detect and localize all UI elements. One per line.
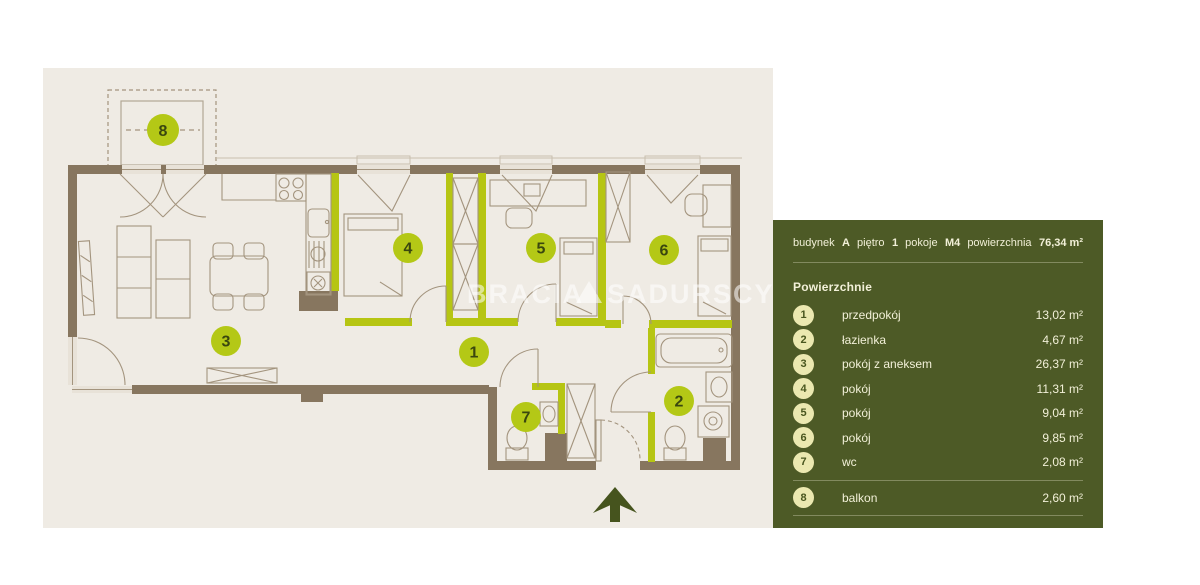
area-row: 8 balkon 2,60 m² bbox=[793, 486, 1083, 511]
room-area: 2,60 m² bbox=[1042, 491, 1083, 505]
room-marker-6: 6 bbox=[649, 235, 679, 265]
room-area: 2,08 m² bbox=[1042, 455, 1083, 469]
room-number-badge: 5 bbox=[793, 403, 814, 424]
watermark-text-2: SADURSCY bbox=[607, 279, 775, 309]
room-area: 13,02 m² bbox=[1036, 308, 1083, 322]
svg-text:2: 2 bbox=[675, 394, 684, 411]
room-area: 9,04 m² bbox=[1042, 406, 1083, 420]
room-name: pokój bbox=[842, 406, 871, 420]
room-number-badge: 3 bbox=[793, 354, 814, 375]
info-panel: budynek A piętro 1 pokoje M4 powierzchni… bbox=[773, 220, 1103, 528]
area-row: 3 pokój z aneksem 26,37 m² bbox=[793, 352, 1083, 377]
room-marker-5: 5 bbox=[526, 233, 556, 263]
meta-rooms: pokoje M4 bbox=[905, 233, 960, 251]
room-area: 26,37 m² bbox=[1036, 357, 1083, 371]
panel-divider bbox=[793, 262, 1083, 263]
room-number-badge: 8 bbox=[793, 487, 814, 508]
room-marker-7: 7 bbox=[511, 402, 541, 432]
meta-rooms-value: M4 bbox=[945, 237, 960, 249]
room-marker-8: 8 bbox=[147, 114, 179, 146]
svg-text:5: 5 bbox=[537, 241, 546, 258]
room-name: wc bbox=[842, 455, 857, 469]
room-marker-3: 3 bbox=[211, 326, 241, 356]
svg-text:8: 8 bbox=[159, 123, 168, 140]
areas-section-title: Powierzchnie bbox=[793, 280, 1083, 294]
room-number-badge: 6 bbox=[793, 427, 814, 448]
room-name: pokój z aneksem bbox=[842, 357, 932, 371]
meta-total-area-value: 76,34 m² bbox=[1039, 237, 1083, 249]
area-row: 2 łazienka 4,67 m² bbox=[793, 328, 1083, 353]
area-row: 1 przedpokój 13,02 m² bbox=[793, 303, 1083, 328]
meta-total-area: powierzchnia 76,34 m² bbox=[967, 233, 1083, 251]
room-area: 11,31 m² bbox=[1037, 382, 1083, 396]
room-marker-4: 4 bbox=[393, 233, 423, 263]
room-name: pokój bbox=[842, 431, 871, 445]
panel-divider bbox=[793, 515, 1083, 516]
room-marker-1: 1 bbox=[459, 337, 489, 367]
meta-building-value: A bbox=[842, 237, 850, 249]
room-area: 4,67 m² bbox=[1042, 333, 1083, 347]
meta-building: budynek A bbox=[793, 233, 850, 251]
room-number-badge: 7 bbox=[793, 452, 814, 473]
room-marker-2: 2 bbox=[664, 386, 694, 416]
areas-list: 1 przedpokój 13,02 m² 2 łazienka 4,67 m²… bbox=[793, 303, 1083, 516]
meta-floor-value: 1 bbox=[892, 237, 898, 249]
room-number-badge: 2 bbox=[793, 329, 814, 350]
room-name: balkon bbox=[842, 491, 877, 505]
panel-divider bbox=[793, 480, 1083, 481]
meta-floor-label: piętro bbox=[857, 237, 885, 249]
room-name: łazienka bbox=[842, 333, 886, 347]
svg-text:1: 1 bbox=[470, 345, 479, 362]
room-name: przedpokój bbox=[842, 308, 901, 322]
watermark: BRACIA SADURSCY bbox=[467, 279, 775, 309]
room-area: 9,85 m² bbox=[1042, 431, 1083, 445]
room-number-badge: 4 bbox=[793, 378, 814, 399]
watermark-text-1: BRACIA bbox=[467, 279, 584, 309]
room-number-badge: 1 bbox=[793, 305, 814, 326]
svg-text:7: 7 bbox=[522, 410, 531, 427]
room-name: pokój bbox=[842, 382, 871, 396]
meta-rooms-label: pokoje bbox=[905, 237, 937, 249]
meta-total-area-label: powierzchnia bbox=[967, 237, 1031, 249]
svg-text:4: 4 bbox=[404, 241, 413, 258]
svg-text:6: 6 bbox=[660, 243, 669, 260]
area-row: 4 pokój 11,31 m² bbox=[793, 377, 1083, 402]
area-row: 6 pokój 9,85 m² bbox=[793, 426, 1083, 451]
apartment-meta: budynek A piętro 1 pokoje M4 powierzchni… bbox=[793, 233, 1083, 251]
svg-text:3: 3 bbox=[222, 334, 231, 351]
page: BRACIA SADURSCY 1 2 3 4 bbox=[0, 0, 1200, 585]
meta-floor: piętro 1 bbox=[857, 233, 898, 251]
area-row: 5 pokój 9,04 m² bbox=[793, 401, 1083, 426]
area-row: 7 wc 2,08 m² bbox=[793, 450, 1083, 475]
meta-building-label: budynek bbox=[793, 237, 835, 249]
